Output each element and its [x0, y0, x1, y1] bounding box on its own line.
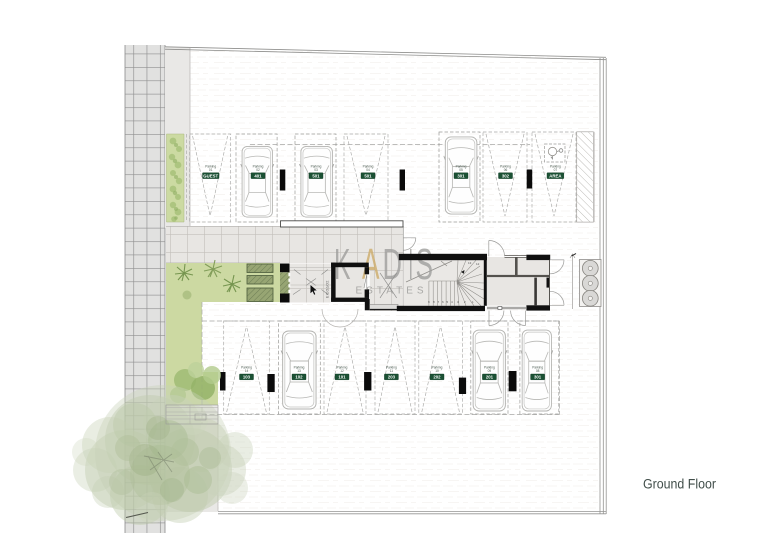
svg-text:401: 401 — [254, 173, 262, 178]
svg-text:301: 301 — [534, 375, 542, 380]
svg-text:07: 07 — [554, 168, 558, 172]
svg-text:GUEST: GUEST — [203, 173, 218, 178]
svg-text:101: 101 — [338, 375, 346, 380]
svg-text:09: 09 — [488, 369, 492, 373]
svg-text:04: 04 — [366, 168, 370, 172]
svg-text:08: 08 — [536, 369, 540, 373]
svg-text:501: 501 — [364, 173, 372, 178]
svg-text:Ground Floor: Ground Floor — [643, 477, 716, 493]
svg-text:203: 203 — [388, 375, 396, 380]
svg-text:12: 12 — [476, 262, 480, 266]
svg-text:06: 06 — [504, 168, 508, 172]
svg-text:202: 202 — [433, 375, 441, 380]
svg-text:ΕΙΣΟΔΟΣ: ΕΙΣΟΔΟΣ — [326, 280, 330, 298]
svg-text:301: 301 — [457, 173, 465, 178]
svg-text:13: 13 — [468, 261, 472, 265]
svg-text:12: 12 — [340, 369, 344, 373]
svg-text:201: 201 — [486, 375, 494, 380]
svg-text:03: 03 — [314, 168, 318, 172]
svg-text:102: 102 — [295, 375, 303, 380]
svg-text:05: 05 — [459, 168, 463, 172]
svg-text:I: I — [409, 240, 414, 289]
svg-text:AREA: AREA — [549, 173, 561, 178]
svg-text:14: 14 — [245, 369, 249, 373]
svg-text:01: 01 — [209, 168, 213, 172]
svg-text:302: 302 — [502, 173, 510, 178]
svg-text:13: 13 — [297, 369, 301, 373]
svg-text:11: 11 — [390, 369, 394, 373]
svg-text:501: 501 — [312, 173, 320, 178]
svg-text:S: S — [416, 240, 434, 289]
svg-text:10: 10 — [435, 369, 439, 373]
svg-text:02: 02 — [256, 168, 260, 172]
svg-text:103: 103 — [243, 375, 251, 380]
